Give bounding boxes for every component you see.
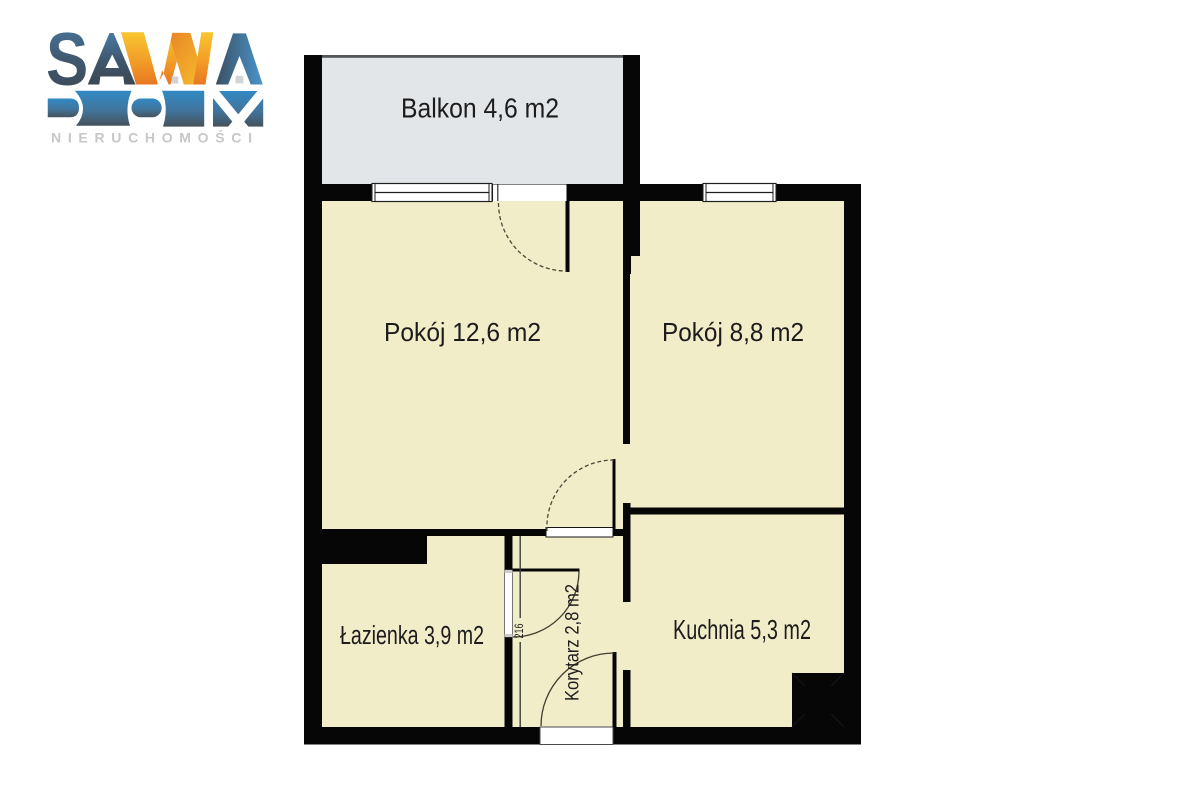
svg-text:Korytarz 2,8 m2: Korytarz 2,8 m2: [562, 584, 584, 701]
svg-text:Pokój 12,6 m2: Pokój 12,6 m2: [384, 317, 541, 347]
svg-text:216: 216: [512, 623, 526, 638]
svg-text:Balkon 4,6 m2: Balkon 4,6 m2: [401, 93, 559, 124]
svg-text:NIERUCHOMOŚCI: NIERUCHOMOŚCI: [51, 128, 252, 145]
svg-text:Kuchnia 5,3 m2: Kuchnia 5,3 m2: [673, 614, 811, 645]
svg-text:S: S: [46, 17, 88, 101]
svg-text:Łazienka 3,9 m2: Łazienka 3,9 m2: [340, 622, 484, 650]
svg-text:Pokój 8,8 m2: Pokój 8,8 m2: [662, 317, 804, 347]
